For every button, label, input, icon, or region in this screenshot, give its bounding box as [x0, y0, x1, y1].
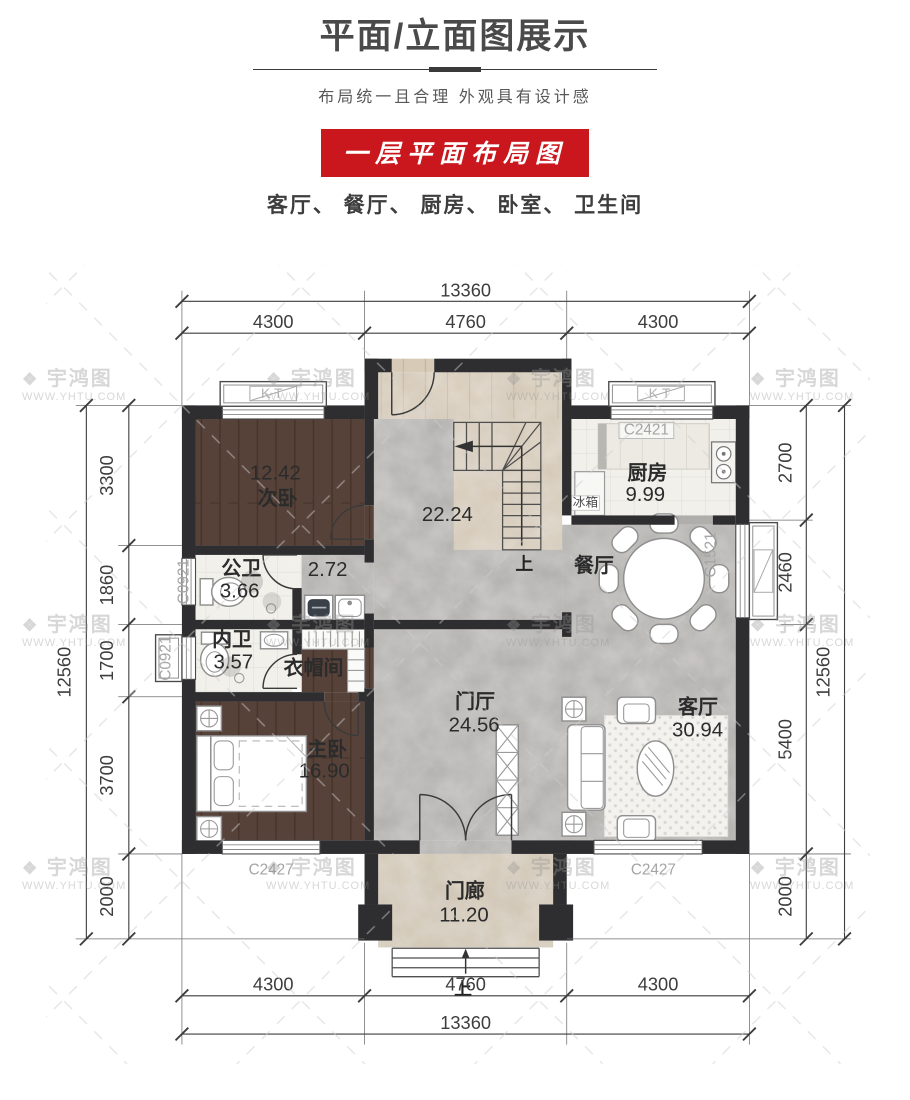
yhtu-logo-icon: ❖	[22, 859, 39, 878]
yhtu-logo-icon: ❖	[22, 616, 39, 635]
page-subtitle: 布局统一且合理 外观具有设计感	[0, 83, 910, 107]
floor-plan: 12.42 次卧 22.24 公卫 3.66 2.72 内卫 3.57 衣帽间 …	[46, 265, 870, 1064]
page-title: 平面/立面图展示	[0, 0, 910, 59]
page: 平面/立面图展示 布局统一且合理 外观具有设计感 一层平面布局图 客厅、 餐厅、…	[0, 0, 910, 1100]
divider-accent	[429, 67, 481, 72]
section-banner: 一层平面布局图	[321, 129, 589, 177]
room-list: 客厅、 餐厅、 厨房、 卧室、 卫生间	[0, 189, 910, 219]
yhtu-logo-icon: ❖	[22, 370, 39, 389]
divider	[253, 69, 657, 75]
dashed-overlay	[46, 265, 870, 1064]
